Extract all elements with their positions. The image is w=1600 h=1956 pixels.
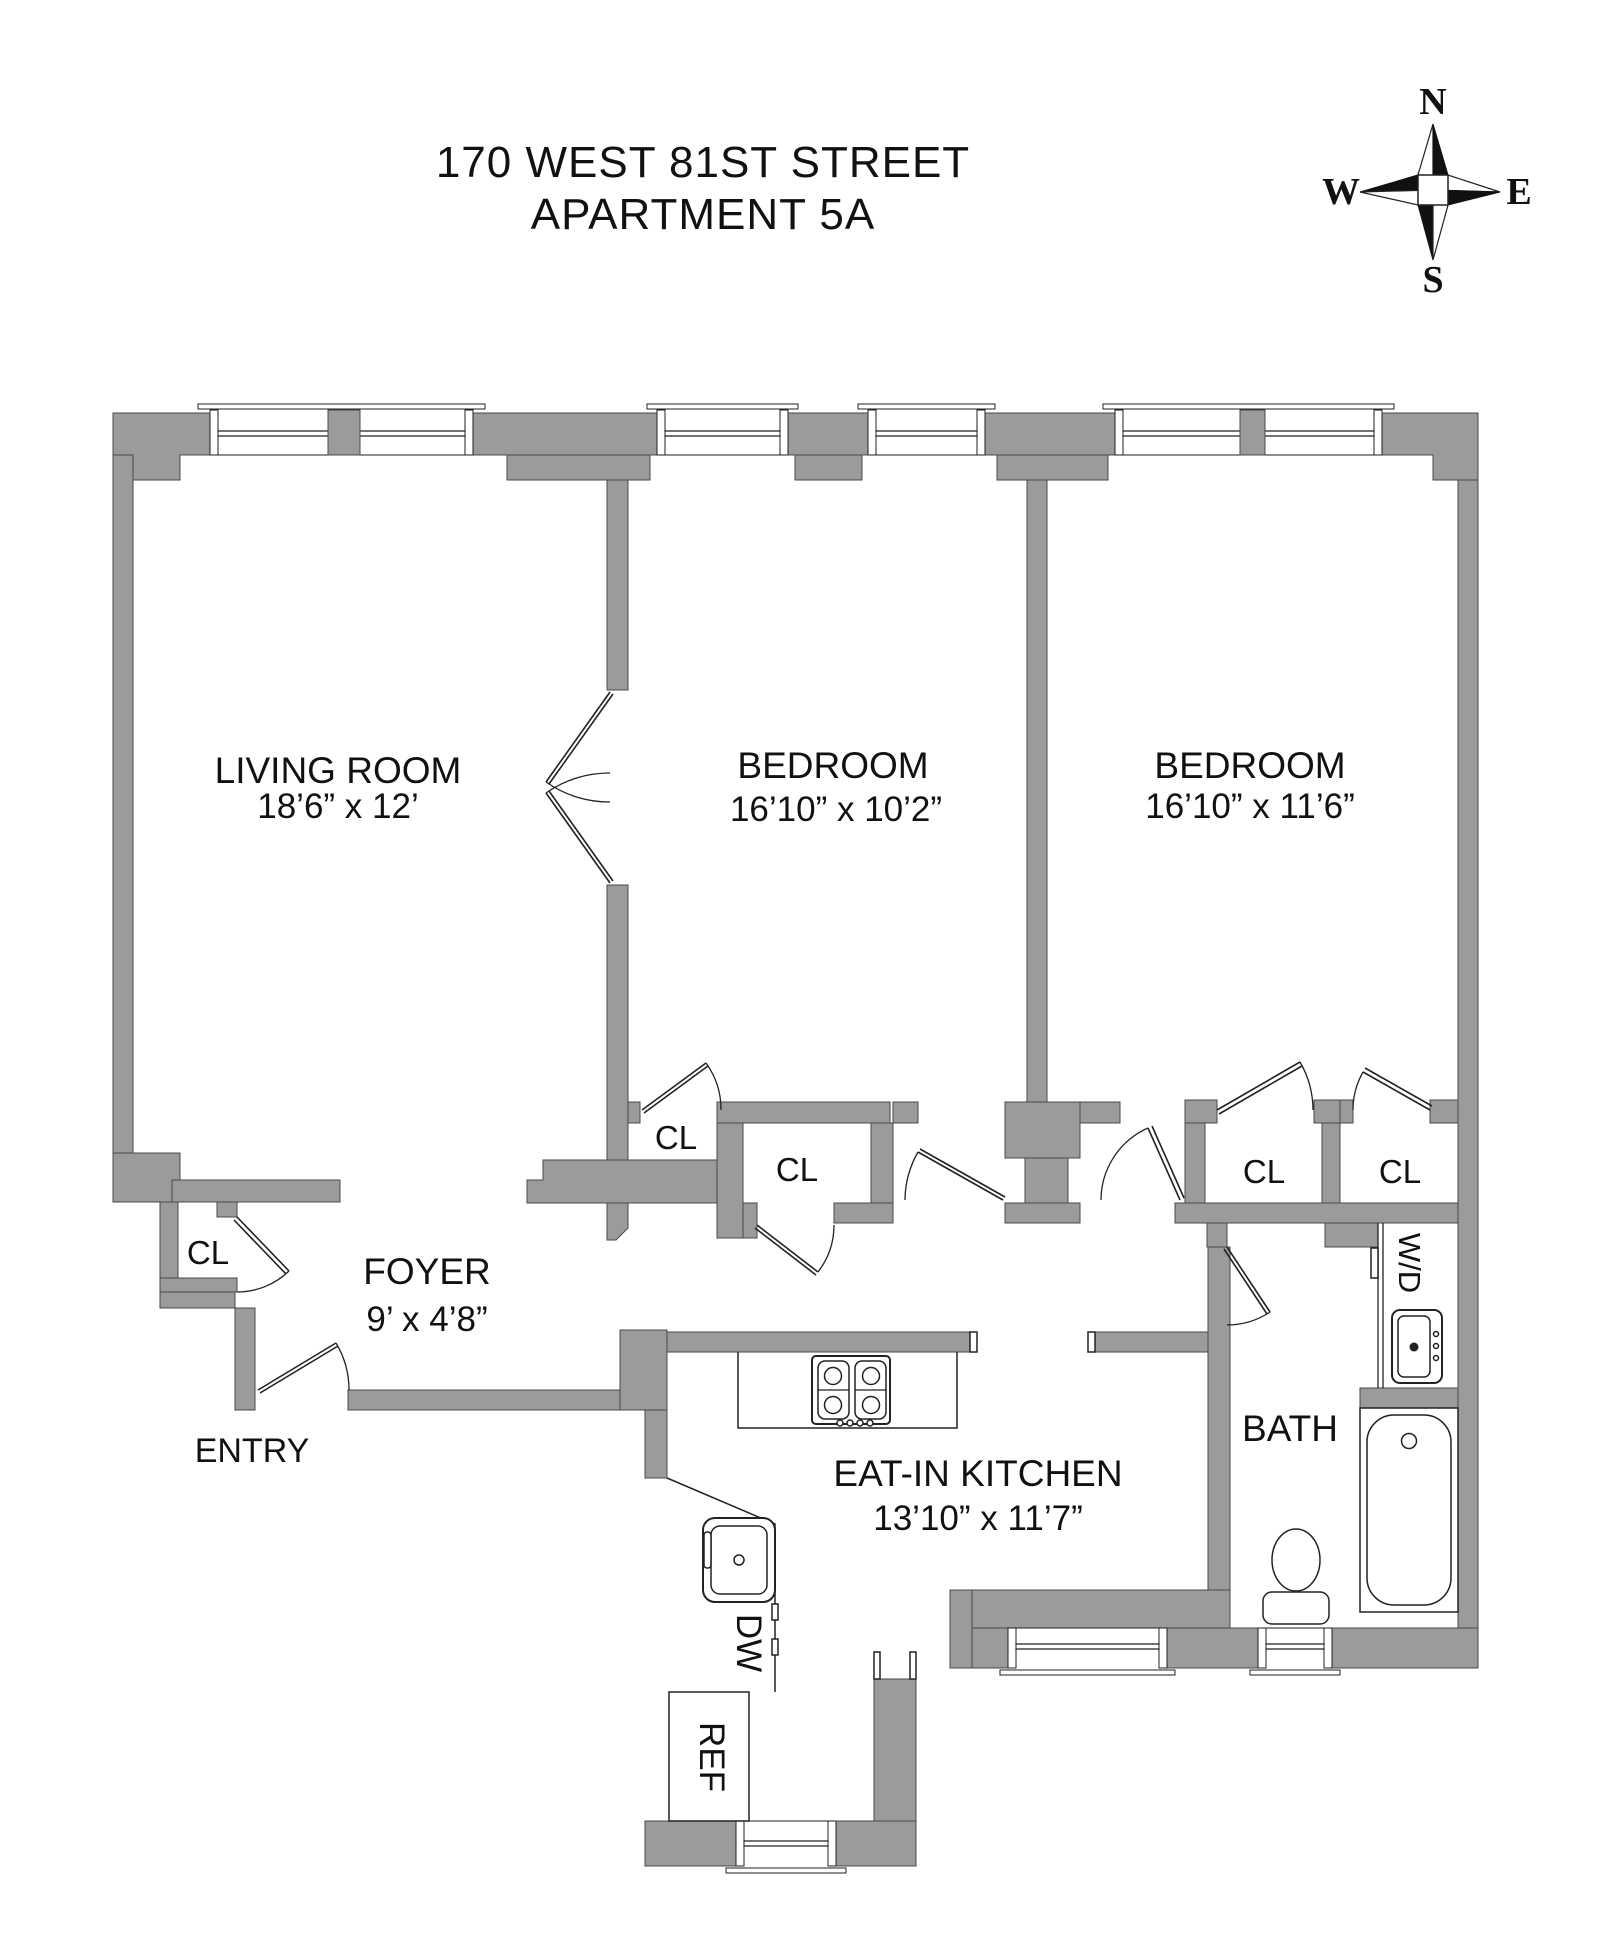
compass-icon: N S E W bbox=[1322, 81, 1532, 301]
title-block: 170 WEST 81ST STREET APARTMENT 5A bbox=[436, 138, 970, 239]
service-doorway-jamb-right bbox=[910, 1652, 916, 1679]
bedroom1-window-right-icon bbox=[858, 404, 995, 455]
foyer-dims: 9’ x 4’8” bbox=[366, 1300, 487, 1339]
bedroom1-door-icon bbox=[905, 1149, 1005, 1200]
toilet-icon bbox=[1263, 1529, 1329, 1624]
dishwasher-label: DW bbox=[729, 1614, 768, 1672]
kitchen-window-icon bbox=[726, 1821, 846, 1873]
entry-door-icon bbox=[258, 1343, 349, 1393]
living-room-dims: 18’6” x 12’ bbox=[257, 787, 418, 826]
french-door-bottom-icon bbox=[546, 773, 613, 883]
living-room-window-icon bbox=[198, 404, 485, 455]
compass-center bbox=[1418, 175, 1448, 205]
bedroom2-window-icon bbox=[1103, 404, 1394, 455]
washer-dryer-label: W/D bbox=[1392, 1233, 1427, 1293]
stove-icon bbox=[812, 1356, 890, 1426]
bedroom-right-label: BEDROOM bbox=[1154, 745, 1345, 786]
lower-window-left-icon bbox=[1000, 1628, 1175, 1675]
compass-south-label: S bbox=[1422, 259, 1443, 301]
kitchen-sink-icon bbox=[703, 1518, 775, 1602]
bedroom1-window-left-icon bbox=[647, 404, 798, 455]
bedroom-right-dims: 16’10” x 11’6” bbox=[1145, 787, 1354, 826]
floorplan-page: 170 WEST 81ST STREET APARTMENT 5A N S E … bbox=[0, 0, 1600, 1956]
compass-north-label: N bbox=[1419, 81, 1446, 123]
floorplan-svg: 170 WEST 81ST STREET APARTMENT 5A N S E … bbox=[0, 0, 1600, 1956]
bedroom2-closet-right-label: CL bbox=[1379, 1153, 1421, 1190]
bedroom2-door-icon bbox=[1101, 1126, 1184, 1200]
entry-label: ENTRY bbox=[195, 1432, 310, 1470]
bedroom2-closet-left-label: CL bbox=[1243, 1153, 1285, 1190]
living-room-label: LIVING ROOM bbox=[215, 750, 462, 791]
title-line1: 170 WEST 81ST STREET bbox=[436, 138, 970, 187]
bedroom1-closet-left-door-icon bbox=[642, 1063, 721, 1113]
bedroom1-closet-right-label: CL bbox=[776, 1151, 818, 1188]
refrigerator-label: REF bbox=[692, 1722, 731, 1792]
bedroom1-closet-left-label: CL bbox=[655, 1119, 697, 1156]
title-line2: APARTMENT 5A bbox=[531, 190, 876, 239]
bedroom1-closet-right-door-icon bbox=[755, 1225, 834, 1275]
bath-window-icon bbox=[1250, 1628, 1340, 1675]
bath-door-icon bbox=[1224, 1247, 1270, 1325]
bath-label: BATH bbox=[1242, 1408, 1338, 1449]
bedroom-mid-label: BEDROOM bbox=[737, 745, 928, 786]
foyer-closet-label: CL bbox=[187, 1234, 229, 1271]
service-doorway-jamb-left bbox=[874, 1652, 880, 1679]
kitchen-dims: 13’10” x 11’7” bbox=[873, 1499, 1082, 1538]
foyer-label: FOYER bbox=[363, 1251, 490, 1292]
french-door-top-icon bbox=[546, 692, 613, 802]
bedroom2-closet-left-door-icon bbox=[1217, 1062, 1313, 1114]
bathtub-icon bbox=[1360, 1408, 1458, 1612]
kitchen-doorway-jamb-left bbox=[970, 1332, 977, 1352]
kitchen-label: EAT-IN KITCHEN bbox=[833, 1453, 1122, 1494]
foyer-closet-door-icon bbox=[234, 1217, 289, 1292]
compass-east-label: E bbox=[1506, 171, 1531, 213]
bedroom-mid-dims: 16’10” x 10’2” bbox=[730, 790, 942, 829]
kitchen-doorway-jamb-right bbox=[1088, 1332, 1095, 1352]
compass-west-label: W bbox=[1322, 171, 1360, 213]
bedroom2-closet-right-door-icon bbox=[1353, 1068, 1432, 1110]
